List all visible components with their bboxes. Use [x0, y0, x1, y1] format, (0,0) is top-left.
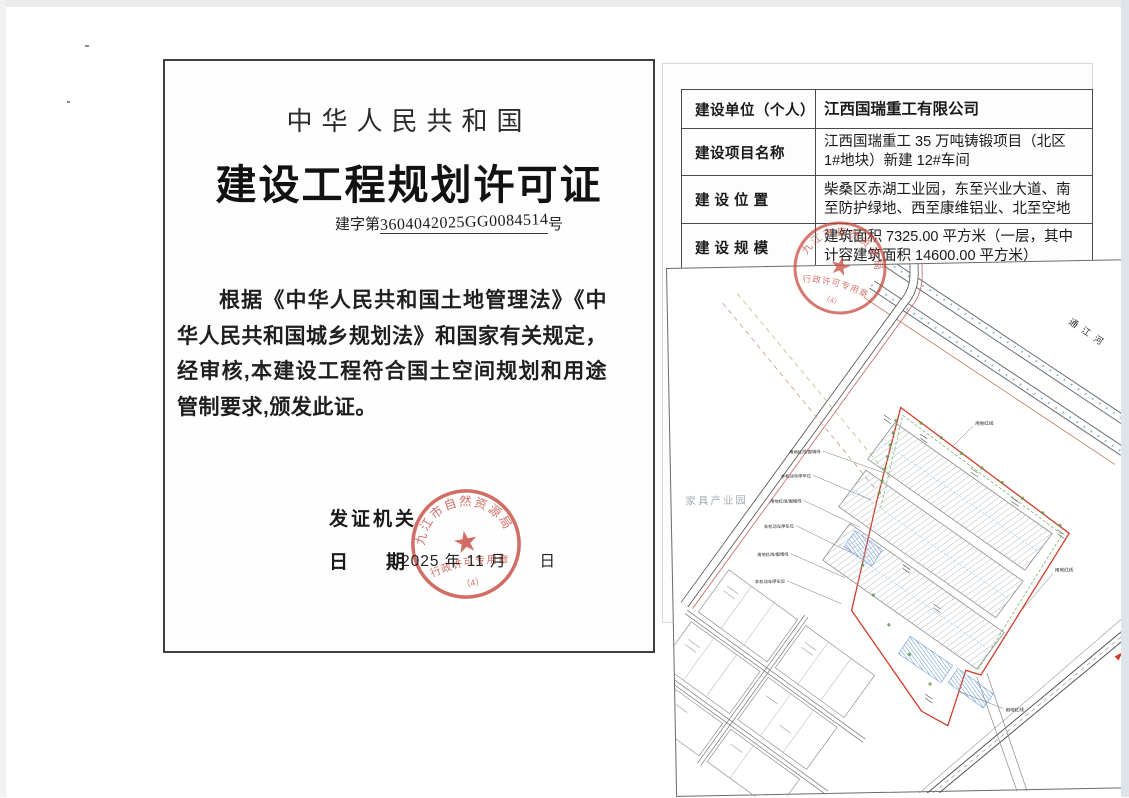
certificate-body-text: 根据《中华人民共和国土地管理法》《中华人民共和国城乡规划法》和国家有关规定，经审…	[177, 283, 607, 425]
row-value: 江西国瑞重工有限公司	[816, 90, 1093, 129]
river-label: 通江河	[1067, 316, 1110, 350]
annotation-parking: 非机动车停车位	[781, 472, 812, 480]
red-line-callout: 用地红线	[975, 420, 994, 427]
seal-graphic: 九江市自然资源局 ★ 行政许可专用章 （4）	[407, 485, 525, 603]
table-row-location: 建 设 位 置 柴桑区赤湖工业园，东至兴业大道、南至防护绿地、西至康维铝业、北至…	[682, 176, 1093, 224]
site-plan-map: 通江河	[667, 260, 1129, 798]
seal-index-text: （4）	[461, 576, 485, 590]
row-value: 柴桑区赤湖工业园，东至兴业大道、南至防护绿地、西至康维铝业、北至空地	[816, 176, 1093, 224]
annotation-parking: 非机动车停车位	[764, 523, 795, 531]
row-label: 建设单位（个人）	[682, 90, 816, 129]
row-value: 江西国瑞重工 35 万吨铸锻项目（北区 1#地块）新建 12#车间	[816, 129, 1093, 176]
annotation-red-line-wall: 用地红线/围墙线	[770, 497, 802, 505]
certificate-number-underline: 3604042025GG0084514	[380, 215, 548, 234]
date-label: 日 期	[329, 547, 405, 574]
row-label: 建 设 位 置	[682, 176, 816, 224]
table-row-unit: 建设单位（个人） 江西国瑞重工有限公司	[682, 90, 1093, 129]
table-row-project-name: 建设项目名称 江西国瑞重工 35 万吨铸锻项目（北区 1#地块）新建 12#车间	[682, 129, 1093, 176]
red-line-callout: 用地红线	[1005, 706, 1024, 713]
annotation-parking: 非机动车停车位	[755, 578, 786, 586]
south-road-line	[987, 672, 1027, 792]
certificate-number: 3604042025GG0084514	[380, 211, 549, 235]
certificate-page: 中华人民共和国 建设工程规划许可证 建字第3604042025GG0084514…	[163, 59, 655, 653]
seal-graphic: 九江市自然资源局 ★ 行政许可专用章 （4）	[790, 218, 890, 318]
certificate-number-line: 建字第3604042025GG0084514号	[335, 213, 563, 234]
red-line-callout: 用地红线	[1055, 566, 1074, 573]
issuer-label: 发证机关	[329, 504, 417, 531]
seal-index-text: （4）	[822, 294, 843, 307]
official-seal-stamp-cross-page: 九江市自然资源局 ★ 行政许可专用章 （4）	[790, 218, 890, 318]
official-seal-stamp: 九江市自然资源局 ★ 行政许可专用章 （4）	[407, 485, 525, 603]
scan-edge-right	[1121, 0, 1129, 797]
certificate-title: 建设工程规划许可证	[165, 151, 653, 211]
scan-edge-top	[0, 0, 1129, 7]
neighborhood-blocks	[667, 558, 904, 798]
date-value: 2025 年 11 月 日	[401, 549, 556, 571]
row-label: 建设项目名称	[682, 129, 816, 176]
site-plan-page: 通江河	[666, 259, 1129, 797]
adjacent-area-label: 家具产业园	[685, 493, 748, 507]
scan-speck	[85, 45, 89, 47]
annotation-red-line-wall: 用地红线/围墙线	[789, 448, 821, 456]
annotation-red-line-wall: 用地红线/围墙线	[757, 551, 789, 559]
survey-line-red	[723, 300, 877, 493]
scan-speck	[67, 101, 70, 103]
scan-edge-left	[0, 0, 6, 797]
certificate-number-suffix: 号	[548, 216, 563, 233]
country-heading: 中华人民共和国	[165, 101, 653, 138]
certificate-number-prefix: 建字第	[335, 216, 380, 233]
